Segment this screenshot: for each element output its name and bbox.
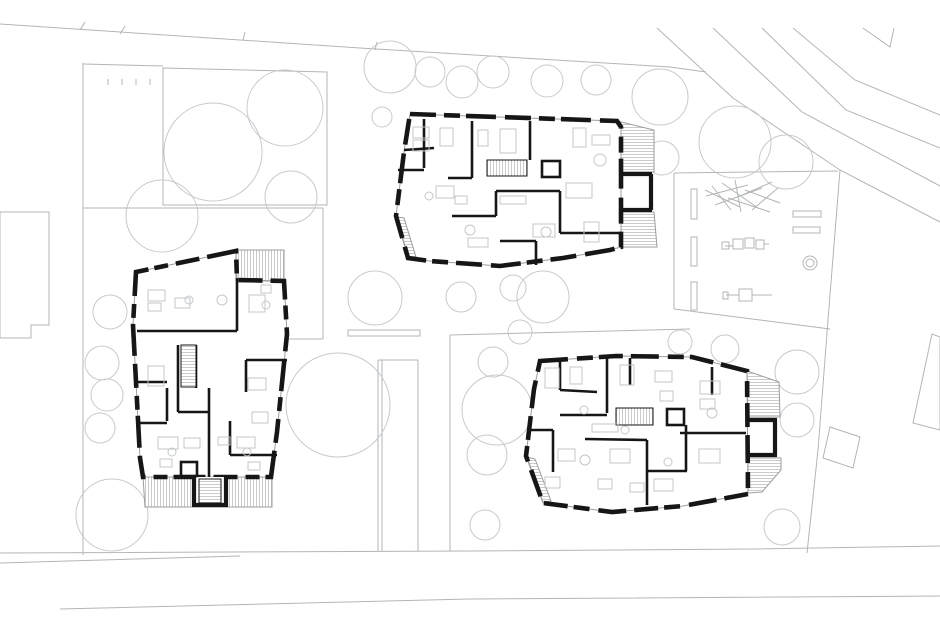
interior-wall xyxy=(585,439,647,440)
balcony-hatch xyxy=(621,212,657,247)
staircase xyxy=(487,160,527,176)
building-west-plan xyxy=(133,250,287,507)
staircase xyxy=(199,479,221,503)
site-plan xyxy=(0,0,940,631)
site-plan-svg xyxy=(0,0,940,631)
elevator-shaft xyxy=(181,462,197,476)
building-south-plan xyxy=(526,356,781,512)
staircase xyxy=(181,345,196,387)
staircase xyxy=(616,408,653,425)
elevator-shaft xyxy=(542,161,560,177)
building-north-plan xyxy=(396,114,657,266)
elevator-shaft xyxy=(667,409,684,425)
balcony-hatch xyxy=(236,250,284,281)
